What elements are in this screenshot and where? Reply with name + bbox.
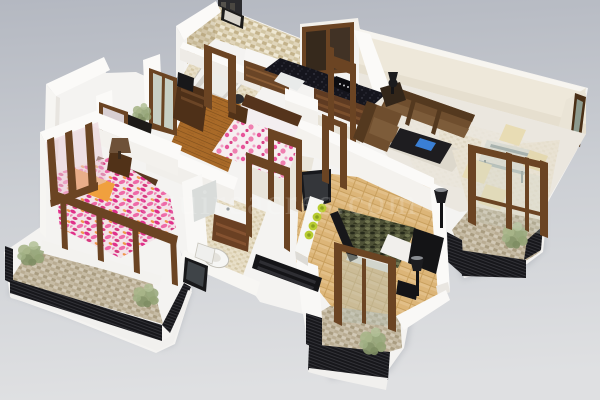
svg-text:acquireacres.com: acquireacres.com (120, 182, 419, 222)
